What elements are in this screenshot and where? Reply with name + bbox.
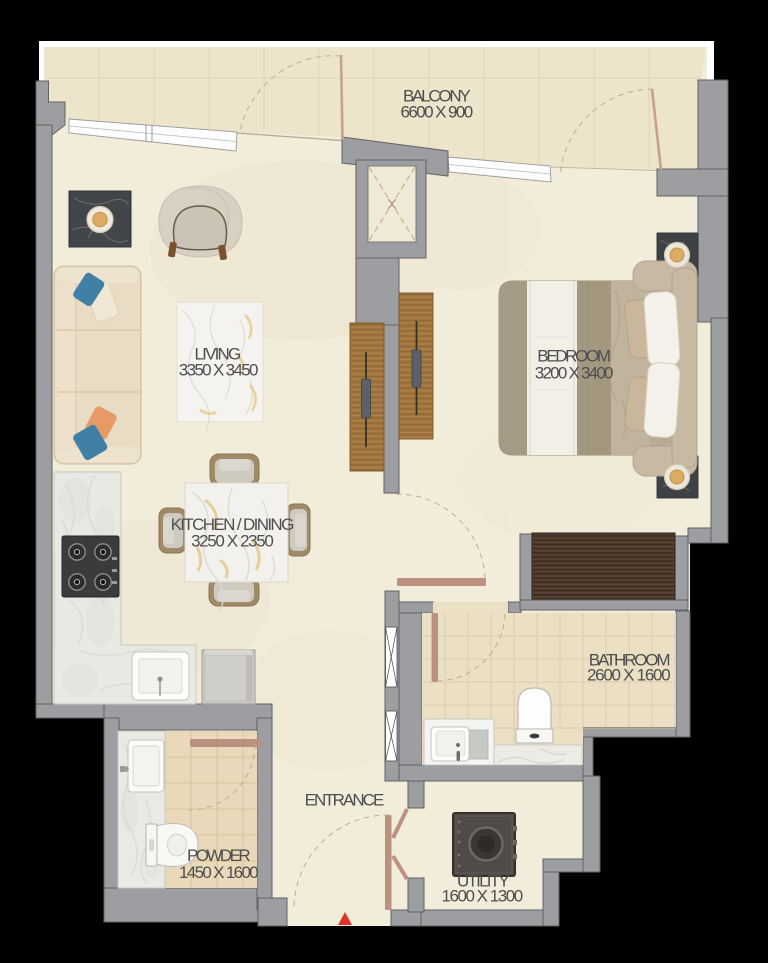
svg-text:3250 X 2350: 3250 X 2350 xyxy=(191,532,274,551)
svg-text:3200 X 3400: 3200 X 3400 xyxy=(535,364,614,383)
svg-text:ENTRANCE: ENTRANCE xyxy=(305,791,385,810)
svg-text:1600 X 1300: 1600 X 1300 xyxy=(442,887,524,906)
svg-text:6600 X 900: 6600 X 900 xyxy=(401,103,474,122)
svg-text:3350 X 3450: 3350 X 3450 xyxy=(179,361,259,380)
svg-text:1450 X 1600: 1450 X 1600 xyxy=(179,863,259,882)
svg-text:2600 X 1600: 2600 X 1600 xyxy=(587,666,671,685)
